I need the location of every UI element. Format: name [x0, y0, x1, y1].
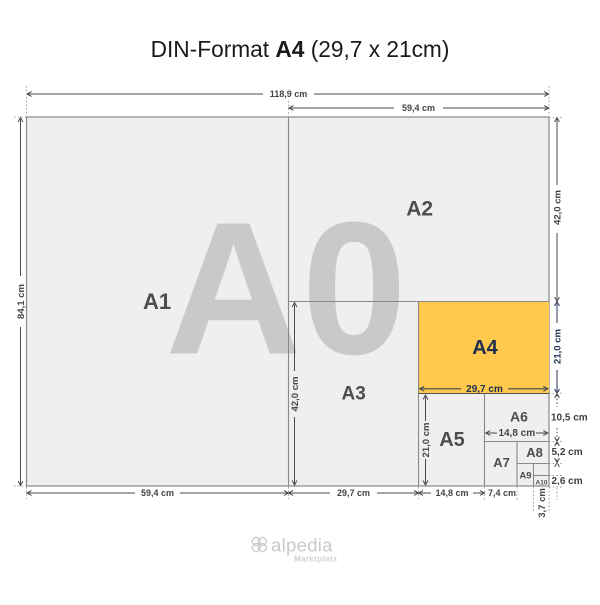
svg-text:7,4 cm: 7,4 cm — [488, 488, 516, 498]
svg-text:A6: A6 — [510, 409, 528, 425]
svg-text:A10: A10 — [536, 479, 548, 486]
svg-text:Marktplatz: Marktplatz — [294, 555, 338, 564]
svg-text:alpedia: alpedia — [271, 535, 333, 556]
svg-text:42,0 cm: 42,0 cm — [552, 190, 563, 225]
svg-text:A1: A1 — [143, 289, 171, 314]
svg-text:21,0 cm: 21,0 cm — [421, 423, 432, 458]
svg-text:14,8 cm: 14,8 cm — [498, 428, 535, 439]
svg-text:A8: A8 — [526, 445, 543, 460]
svg-text:118,9 cm: 118,9 cm — [270, 89, 308, 99]
svg-text:A2: A2 — [406, 198, 433, 221]
svg-text:A3: A3 — [342, 384, 366, 405]
svg-text:29,7 cm: 29,7 cm — [466, 384, 503, 395]
svg-text:2,6 cm: 2,6 cm — [552, 476, 583, 487]
svg-text:A7: A7 — [493, 455, 510, 470]
svg-text:5,2 cm: 5,2 cm — [552, 447, 583, 458]
svg-text:DIN-Format A4 (29,7 x 21cm): DIN-Format A4 (29,7 x 21cm) — [151, 36, 450, 62]
svg-text:3,7 cm: 3,7 cm — [537, 488, 548, 518]
svg-text:A9: A9 — [519, 470, 531, 481]
svg-text:10,5 cm: 10,5 cm — [551, 413, 588, 424]
svg-text:14,8 cm: 14,8 cm — [435, 488, 468, 498]
svg-text:A0: A0 — [165, 184, 407, 395]
svg-text:A5: A5 — [439, 429, 465, 451]
svg-text:59,4 cm: 59,4 cm — [402, 103, 435, 113]
svg-text:84,1 cm: 84,1 cm — [16, 284, 27, 319]
svg-text:42,0 cm: 42,0 cm — [290, 377, 301, 412]
svg-text:21,0 cm: 21,0 cm — [552, 329, 563, 364]
svg-text:59,4 cm: 59,4 cm — [141, 488, 174, 498]
svg-text:A4: A4 — [472, 337, 498, 359]
svg-text:29,7 cm: 29,7 cm — [337, 488, 370, 498]
